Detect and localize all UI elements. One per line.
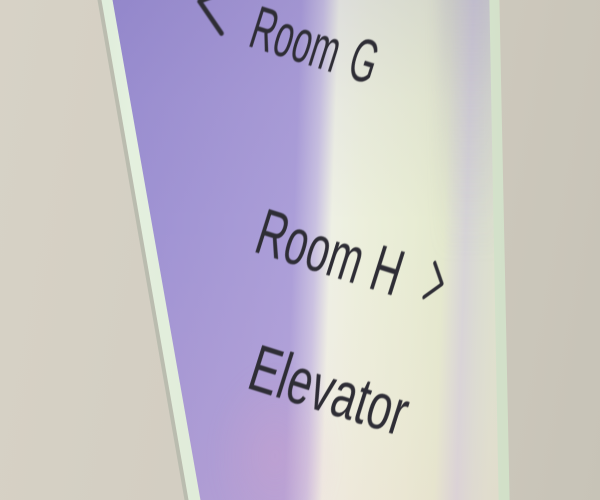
photo-wayfinding-sign: Room G Room H Elevator (0, 0, 600, 500)
lilac-sheen (440, 0, 498, 260)
